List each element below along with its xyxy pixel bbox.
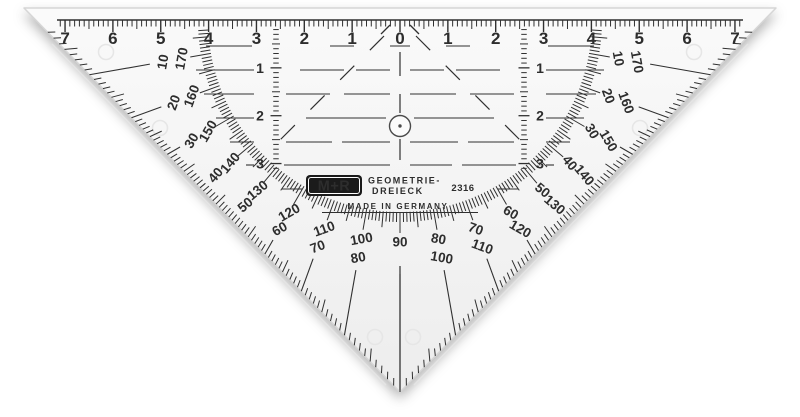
edge-tick <box>376 360 377 367</box>
degree-label-outer: 80 <box>349 249 366 266</box>
ruler-number: 2 <box>491 29 500 48</box>
product-name-line1: GEOMETRIE- <box>368 176 441 186</box>
product-name-line2: DREIECK <box>372 186 424 196</box>
degree-label-inner: 90 <box>392 235 407 250</box>
ruler-number: 6 <box>108 29 117 48</box>
arc-tick <box>592 30 602 31</box>
arc-tick <box>386 212 387 222</box>
arc-tick <box>413 212 414 222</box>
ruler-number: 7 <box>60 29 69 48</box>
arc-tick <box>592 33 602 34</box>
center-hole-dot <box>398 124 401 127</box>
center-hole <box>390 116 411 137</box>
ruler-number: 3 <box>539 29 548 48</box>
degree-label-outer: 10 <box>154 53 171 70</box>
edge-tick <box>424 360 425 367</box>
scale-number: 2 <box>256 108 264 124</box>
degree-label-inner: 80 <box>430 230 447 247</box>
scale-number: 2 <box>536 108 544 124</box>
geodreieck-image: 7654321012345671231231017020160301504014… <box>0 0 800 417</box>
edge-tick <box>733 43 740 44</box>
ruler-number: 1 <box>347 29 356 48</box>
ruler-number: 5 <box>156 29 165 48</box>
arc-tick <box>198 30 208 31</box>
scale-number: 1 <box>256 60 264 76</box>
arc-tick <box>410 212 411 222</box>
edge-tick <box>59 43 66 44</box>
arc-tick <box>389 212 390 222</box>
brand-text: M+R <box>318 179 351 195</box>
ruler-number: 4 <box>204 29 214 48</box>
ruler-number: 1 <box>443 29 452 48</box>
ruler-number: 3 <box>252 29 261 48</box>
origin-text: MADE IN GERMANY <box>348 202 449 211</box>
ruler-number: 6 <box>682 29 691 48</box>
ruler-number: 5 <box>635 29 644 48</box>
ruler-number: 4 <box>587 29 597 48</box>
ruler-number: 2 <box>300 29 309 48</box>
ruler-numbers: 765432101234567 <box>60 29 739 48</box>
degree-label-inner: 10 <box>610 50 627 67</box>
ruler-number: 7 <box>730 29 739 48</box>
model-number: 2316 <box>451 183 474 194</box>
arc-tick <box>198 33 208 34</box>
ruler-number: 0 <box>395 29 404 48</box>
geodreieck-photo: 7654321012345671231231017020160301504014… <box>0 0 800 417</box>
scale-number: 1 <box>536 60 544 76</box>
